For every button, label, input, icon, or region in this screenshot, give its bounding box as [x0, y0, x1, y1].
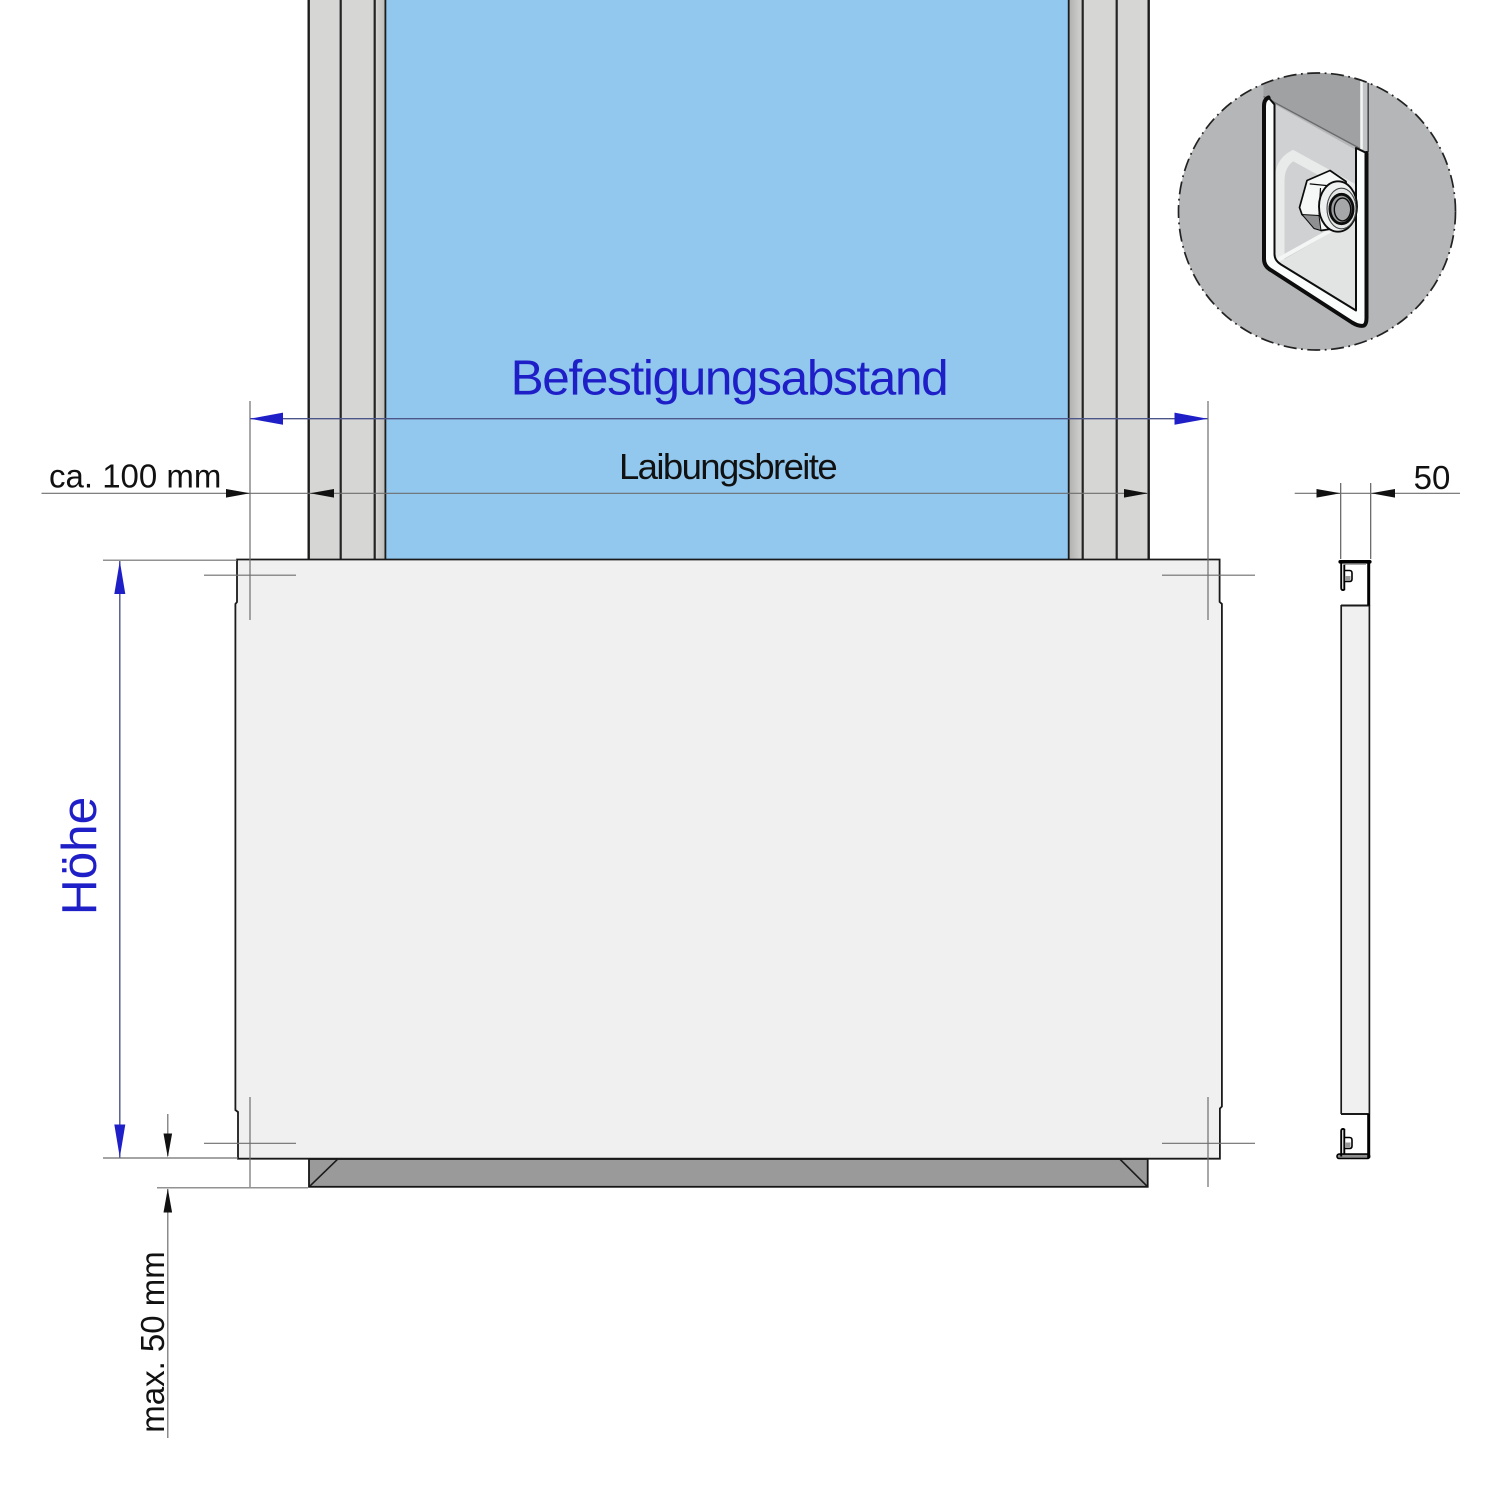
svg-text:Höhe: Höhe — [52, 797, 107, 915]
svg-text:50: 50 — [1414, 459, 1451, 496]
svg-text:max. 50 mm: max. 50 mm — [134, 1251, 171, 1433]
svg-text:ca. 100 mm: ca. 100 mm — [49, 458, 221, 495]
svg-text:Befestigungsabstand: Befestigungsabstand — [511, 351, 948, 406]
svg-text:Laibungsbreite: Laibungsbreite — [619, 446, 836, 487]
